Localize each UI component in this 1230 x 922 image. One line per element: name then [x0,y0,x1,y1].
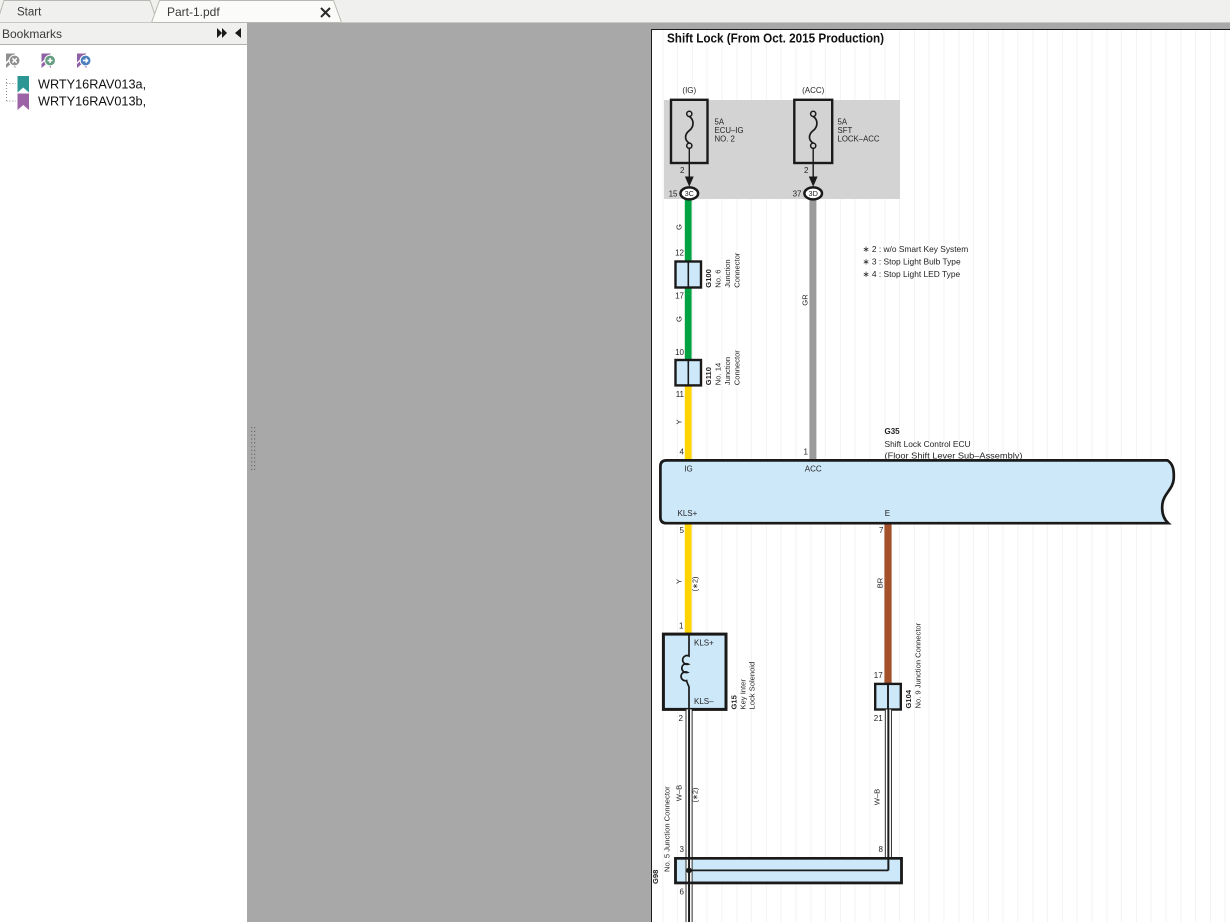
svg-text:ECU–IG: ECU–IG [715,126,744,135]
svg-text:6: 6 [680,888,685,897]
svg-text:Junction: Junction [723,357,732,385]
svg-text:NO. 2: NO. 2 [715,135,735,144]
svg-text:SFT: SFT [838,126,853,135]
svg-text:5A: 5A [715,117,725,126]
svg-text:17: 17 [675,291,684,300]
svg-text:G: G [675,224,684,230]
svg-text:No. 5 Junction Connector: No. 5 Junction Connector [663,786,672,872]
svg-text:Shift Lock (From Oct. 2015 Pro: Shift Lock (From Oct. 2015 Production) [667,31,884,46]
svg-text:E: E [885,509,890,518]
svg-text:17: 17 [874,671,883,680]
svg-text:WRTY16RAV013a,: WRTY16RAV013a, [38,78,146,92]
svg-text:G35: G35 [885,427,901,436]
svg-text:KLS–: KLS– [694,697,714,706]
svg-text:Y: Y [674,579,683,584]
svg-text:3D: 3D [809,189,818,198]
svg-text:KLS+: KLS+ [694,639,714,648]
svg-text:3: 3 [680,845,685,854]
svg-text:G: G [675,316,684,322]
svg-text:Connector: Connector [733,252,742,288]
svg-text:12: 12 [675,248,684,257]
svg-text:G104: G104 [904,689,913,708]
svg-text:∗ 3 : Stop Light Bulb Type: ∗ 3 : Stop Light Bulb Type [863,257,961,267]
svg-text:(Floor Shift Lever Sub–Assembl: (Floor Shift Lever Sub–Assembly) [885,451,1023,460]
svg-text:2: 2 [679,714,684,723]
svg-text:(ACC): (ACC) [802,86,825,95]
svg-text:(IG): (IG) [682,86,696,95]
svg-text:8: 8 [879,845,884,854]
svg-text:(∗2): (∗2) [691,577,700,592]
svg-text:10: 10 [675,348,684,357]
svg-text:Part-1.pdf: Part-1.pdf [167,5,220,19]
svg-text:(∗2): (∗2) [691,788,700,803]
svg-text:G98: G98 [652,870,660,884]
svg-text:No. 6: No. 6 [714,270,723,288]
svg-text:5A: 5A [838,117,848,126]
svg-text:Shift Lock Control ECU: Shift Lock Control ECU [885,439,971,449]
svg-text:∗ 2 : w/o Smart Key System: ∗ 2 : w/o Smart Key System [863,244,969,254]
svg-text:W–B: W–B [873,789,882,805]
svg-text:Junction: Junction [723,259,732,287]
svg-text:G15: G15 [730,694,739,709]
svg-text:KLS+: KLS+ [678,509,698,518]
svg-text:Lock Solenoid: Lock Solenoid [748,662,757,710]
svg-text:G110: G110 [704,367,713,385]
svg-text:GR: GR [801,294,810,306]
svg-text:3C: 3C [685,189,694,198]
svg-text:No. 9 Junction Connector: No. 9 Junction Connector [914,622,923,708]
svg-text:2: 2 [680,166,685,175]
svg-text:ACC: ACC [805,465,822,474]
svg-text:37: 37 [793,189,802,198]
svg-text:G100: G100 [704,269,713,288]
svg-text:1: 1 [804,448,809,457]
svg-text:4: 4 [680,448,685,457]
svg-text:5: 5 [680,526,685,535]
svg-text:LOCK–ACC: LOCK–ACC [838,135,880,144]
svg-text:Start: Start [17,7,42,19]
svg-text:Connector: Connector [733,350,742,386]
svg-text:W–B: W–B [674,785,683,801]
svg-text:WRTY16RAV013b,: WRTY16RAV013b, [38,95,146,109]
svg-text:Key Inter: Key Inter [739,679,748,710]
svg-text:Y: Y [675,419,684,424]
svg-text:11: 11 [676,390,685,399]
svg-text:IG: IG [684,465,692,474]
svg-text:BR: BR [876,577,885,588]
svg-text:7: 7 [879,526,884,535]
svg-text:∗ 4 : Stop Light LED Type: ∗ 4 : Stop Light LED Type [863,269,961,279]
svg-text:15: 15 [669,189,678,198]
svg-text:1: 1 [679,621,684,630]
svg-text:2: 2 [804,166,809,175]
svg-text:21: 21 [874,714,883,723]
svg-text:No. 14: No. 14 [714,363,723,385]
